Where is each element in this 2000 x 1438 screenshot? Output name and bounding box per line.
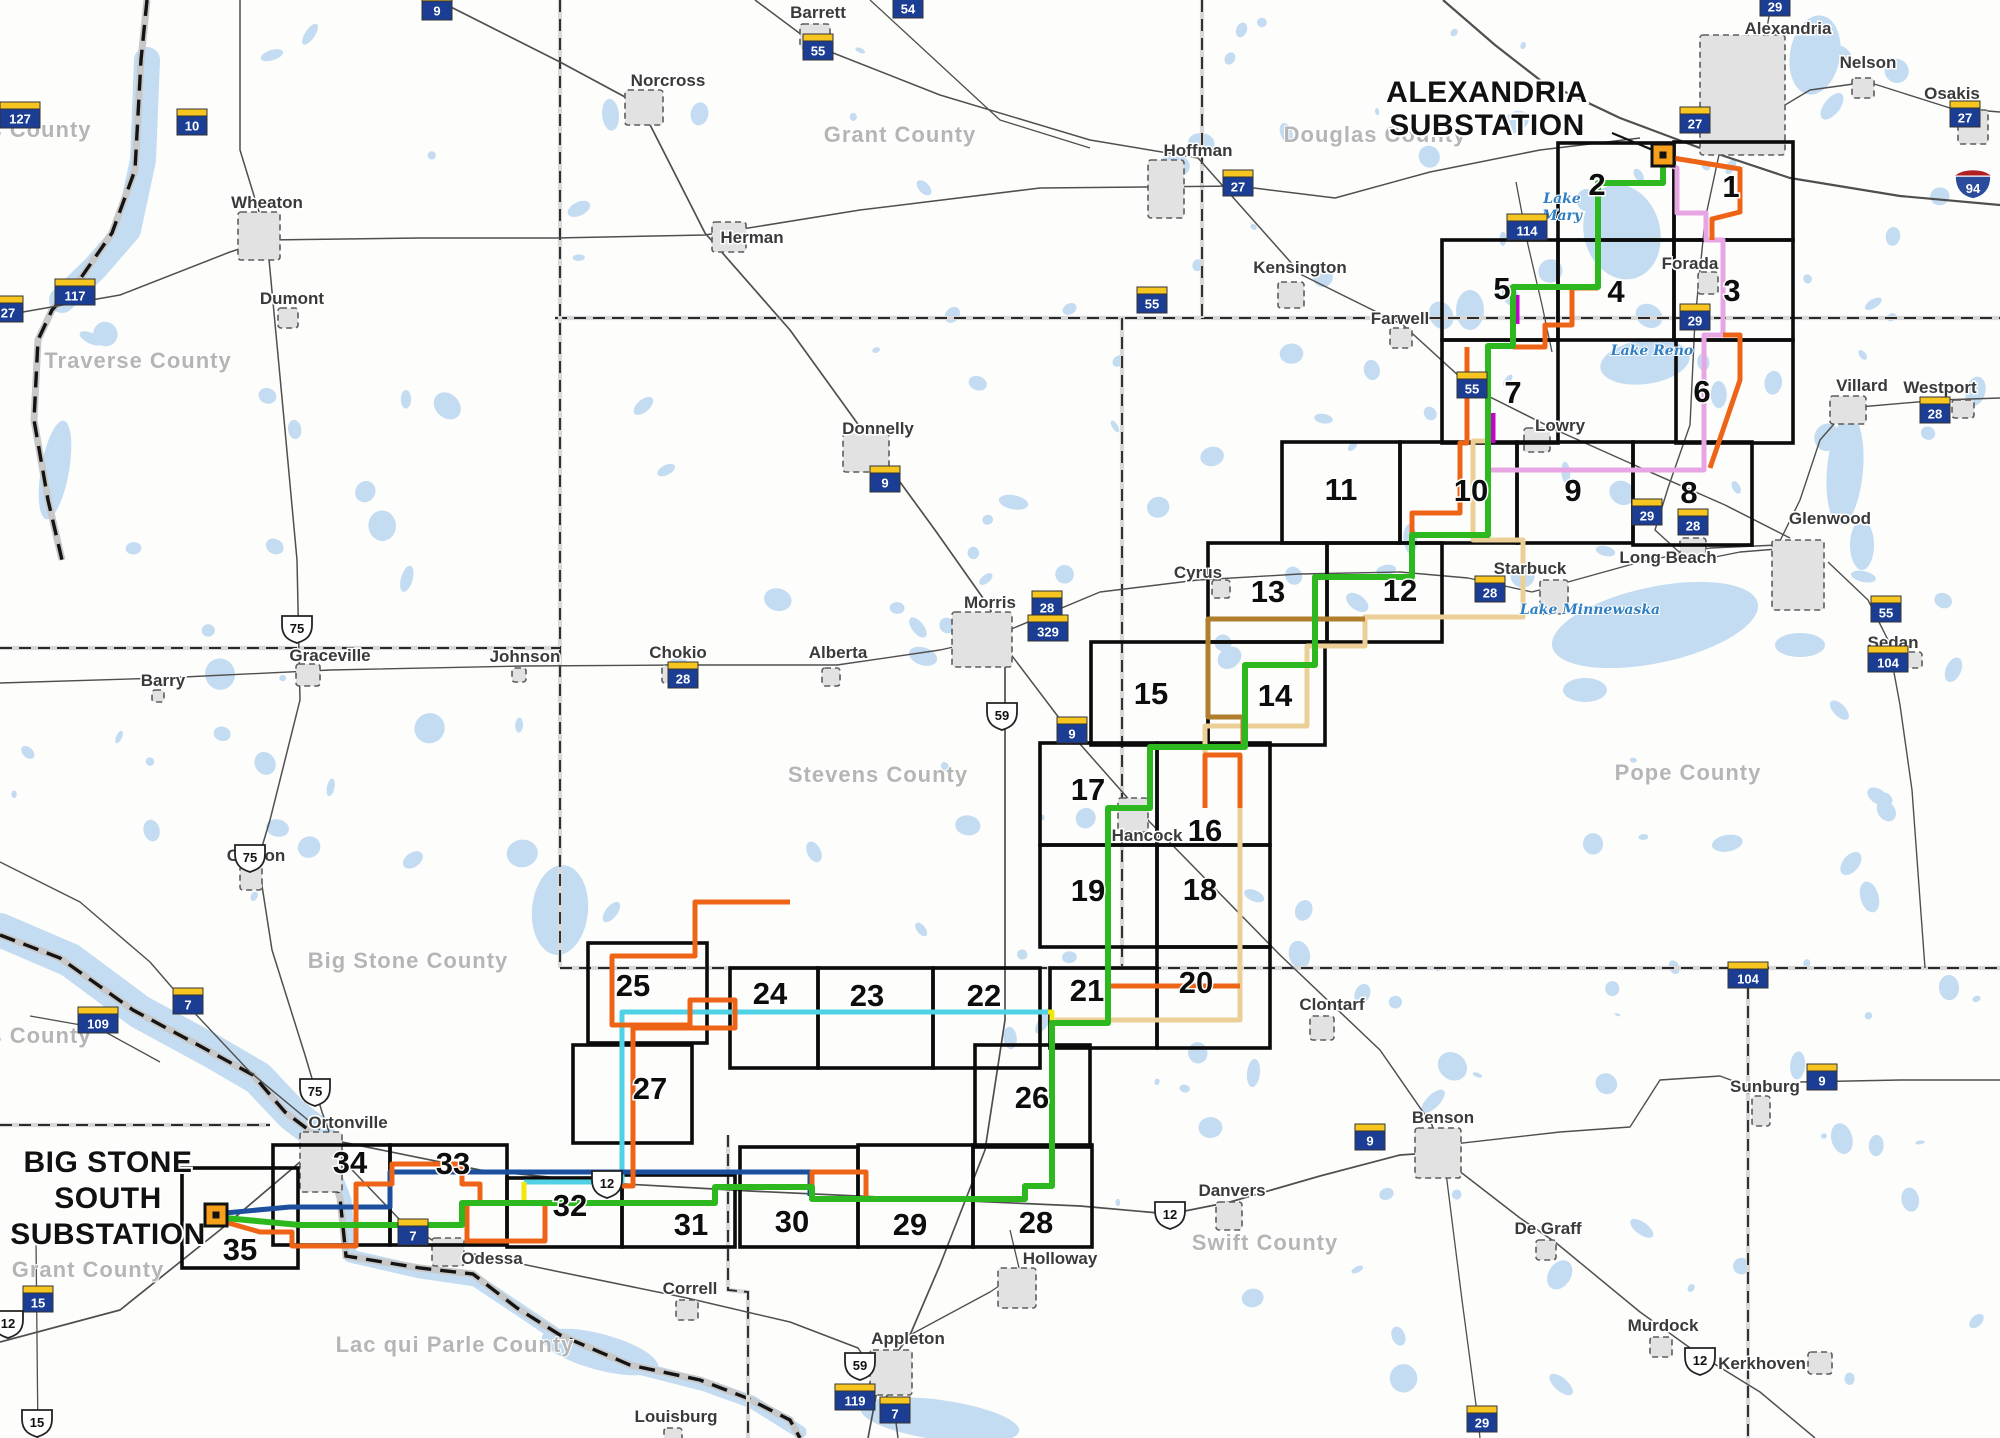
route-box-10-label: 10 (1454, 473, 1488, 508)
mn-shield-band-icon (23, 1286, 53, 1293)
town-label-cyrus: Cyrus (1174, 563, 1222, 582)
mn-shield-band-icon (1032, 591, 1062, 598)
town-label-osakis: Osakis (1924, 84, 1980, 103)
route-box-28-label: 28 (1019, 1205, 1053, 1240)
mn-shield-band-icon (173, 988, 203, 995)
shield-mn-55: 55 (1457, 372, 1487, 398)
shield-mn-28: 28 (1032, 591, 1062, 617)
substation-label-big-stone-south-line2: SUBSTATION (10, 1218, 206, 1251)
town-marker-forada (1698, 272, 1718, 294)
town-label-lowry: Lowry (1535, 416, 1586, 435)
route-box-17-label: 17 (1071, 772, 1105, 807)
town-marker-de-graff (1536, 1240, 1556, 1260)
shield-number: 75 (308, 1084, 322, 1099)
town-label-kensington: Kensington (1253, 258, 1347, 277)
shield-number: 29 (1640, 509, 1654, 524)
county-label-8-lac-qui-parle-county: Lac qui Parle County (336, 1332, 575, 1357)
town-marker-nelson (1852, 78, 1874, 98)
shield-number: 54 (901, 2, 916, 17)
shield-number: 7 (184, 998, 191, 1013)
route-box-7-label: 7 (1504, 375, 1521, 410)
route-box-9-label: 9 (1564, 473, 1581, 508)
shield-mn-7: 7 (398, 1219, 428, 1245)
shield-mn-55: 55 (1871, 596, 1901, 622)
mn-shield-band-icon (1678, 509, 1708, 516)
town-marker-louisburg (664, 1428, 682, 1438)
shield-mn-29: 29 (1760, 0, 1790, 16)
shield-number: 28 (1686, 519, 1700, 534)
route-box-20-label: 20 (1179, 965, 1213, 1000)
shield-mn-27: 27 (0, 296, 23, 322)
shield-mn-28: 28 (1678, 509, 1708, 535)
town-marker-villard (1830, 396, 1866, 424)
lake-box5-lake (1456, 290, 1484, 330)
route-box-13-label: 13 (1251, 574, 1285, 609)
shield-number: 119 (845, 1394, 866, 1409)
town-label-appleton: Appleton (871, 1329, 945, 1348)
town-marker-farwell (1390, 328, 1412, 348)
mn-shield-band-icon (1871, 596, 1901, 603)
route-box-1-label: 1 (1722, 169, 1739, 204)
shield-mn-119: 119 (835, 1384, 875, 1410)
shield-mn-27: 27 (1950, 101, 1980, 127)
shield-mn-29: 29 (1632, 499, 1662, 525)
route-box-5-label: 5 (1493, 271, 1510, 306)
town-label-kerkhoven: Kerkhoven (1718, 1354, 1806, 1373)
route-box-30-label: 30 (775, 1204, 809, 1239)
town-marker-benson (1415, 1128, 1461, 1178)
route-box-16-label: 16 (1188, 813, 1222, 848)
mn-shield-band-icon (1475, 576, 1505, 583)
shield-number: 12 (1163, 1207, 1177, 1222)
shield-number: 9 (1366, 1134, 1373, 1149)
mn-shield-band-icon (1950, 101, 1980, 108)
town-label-forada: Forada (1662, 254, 1719, 273)
mn-shield-band-icon (1632, 499, 1662, 506)
town-label-herman: Herman (720, 228, 783, 247)
shield-mn-109: 109 (78, 1007, 118, 1033)
mn-shield-band-icon (1680, 107, 1710, 114)
county-label-1-traverse-county: Traverse County (44, 348, 231, 373)
town-label-glenwood: Glenwood (1789, 509, 1871, 528)
route-box-6-label: 6 (1693, 374, 1710, 409)
shield-number: 329 (1037, 625, 1059, 640)
mn-shield-band-icon (870, 466, 900, 473)
shield-number: 7 (891, 1407, 898, 1422)
shield-number: 10 (185, 119, 199, 134)
county-label-4-stevens-county: Stevens County (788, 762, 968, 787)
substation-label-alexandria-line0: ALEXANDRIA (1386, 76, 1588, 109)
town-label-alberta: Alberta (809, 643, 868, 662)
town-marker-kerkhoven (1808, 1352, 1832, 1374)
shield-mn-15: 15 (23, 1286, 53, 1312)
town-marker-murdock (1650, 1337, 1672, 1357)
route-box-29-label: 29 (893, 1207, 927, 1242)
shield-mn-55: 55 (803, 34, 833, 60)
town-marker-barry (152, 690, 164, 702)
town-marker-cyrus (1212, 580, 1230, 598)
shield-mn-9: 9 (1355, 1124, 1385, 1150)
mn-shield-band-icon (1868, 646, 1908, 653)
mn-shield-band-icon (1728, 962, 1768, 969)
shield-mn-9: 9 (870, 466, 900, 492)
shield-number: 27 (1688, 117, 1702, 132)
substation-label-big-stone-south-line1: SOUTH (54, 1182, 162, 1215)
shield-mn-28: 28 (1920, 397, 1950, 423)
town-label-louisburg: Louisburg (634, 1407, 717, 1426)
shield-number: 9 (1818, 1074, 1825, 1089)
route-box-32-label: 32 (553, 1188, 587, 1223)
route-box-3-label: 3 (1723, 273, 1740, 308)
shield-mn-54: 54 (893, 0, 923, 18)
town-marker-johnson (512, 668, 526, 682)
town-label-ortonville: Ortonville (308, 1113, 387, 1132)
county-label-9-grant-county: Grant County (12, 1257, 165, 1282)
route-box-18-label: 18 (1183, 872, 1217, 907)
county-label-2-grant-county: Grant County (824, 122, 977, 147)
town-label-murdock: Murdock (1628, 1316, 1699, 1335)
town-marker-norcross (625, 90, 663, 125)
mn-shield-band-icon (177, 109, 207, 116)
shield-number: 55 (1145, 297, 1159, 312)
lake-blob (401, 390, 411, 409)
town-label-de-graff: De Graff (1514, 1219, 1581, 1238)
route-map-svg: Roberts CountyTraverse CountyGrant Count… (0, 0, 2000, 1438)
town-label-barry: Barry (141, 671, 186, 690)
town-label-starbuck: Starbuck (1494, 559, 1567, 578)
town-label-westport: Westport (1903, 378, 1977, 397)
town-label-holloway: Holloway (1023, 1249, 1098, 1268)
mn-shield-band-icon (1467, 1406, 1497, 1413)
route-box-34-label: 34 (333, 1145, 368, 1180)
town-marker-wheaton (238, 212, 280, 260)
shield-mn-9: 9 (1057, 717, 1087, 743)
shield-number: 75 (243, 850, 257, 865)
town-marker-clontarf (1310, 1016, 1334, 1040)
town-marker-kensington (1278, 282, 1304, 308)
mn-shield-band-icon (835, 1384, 875, 1391)
mn-shield-band-icon (1223, 170, 1253, 177)
town-label-morris: Morris (964, 593, 1016, 612)
town-marker-dumont (278, 308, 298, 328)
shield-mn-28: 28 (1475, 576, 1505, 602)
mn-shield-band-icon (1507, 214, 1547, 221)
town-label-danvers: Danvers (1198, 1181, 1265, 1200)
town-marker-sunburg (1752, 1096, 1770, 1126)
town-marker-danvers (1216, 1202, 1242, 1230)
shield-mn-104: 104 (1868, 646, 1908, 672)
town-marker-westport (1952, 400, 1974, 418)
substation-label-alexandria-line1: SUBSTATION (1389, 109, 1585, 142)
mn-shield-band-icon (1355, 1124, 1385, 1131)
mn-shield-band-icon (0, 296, 23, 303)
town-marker-odessa (432, 1238, 464, 1266)
shield-mn-9: 9 (1807, 1064, 1837, 1090)
route-box-2-label: 2 (1588, 167, 1605, 202)
mn-shield-band-icon (1057, 717, 1087, 724)
shield-mn-10: 10 (177, 109, 207, 135)
shield-mn-104: 104 (1728, 962, 1768, 988)
town-label-sunburg: Sunburg (1730, 1077, 1800, 1096)
shield-number: 59 (995, 708, 1009, 723)
mn-shield-band-icon (55, 279, 95, 286)
substation-marker-dot-big-stone-south (213, 1212, 220, 1219)
shield-number: 28 (1040, 601, 1054, 616)
town-label-wheaton: Wheaton (231, 193, 303, 212)
town-label-donnelly: Donnelly (842, 419, 914, 438)
mn-shield-band-icon (1457, 372, 1487, 379)
town-label-hoffman: Hoffman (1164, 141, 1233, 160)
shield-mn-7: 7 (880, 1397, 910, 1423)
town-label-johnson: Johnson (490, 647, 561, 666)
shield-number: 114 (1517, 224, 1539, 239)
route-box-15-label: 15 (1134, 676, 1168, 711)
lake-emily-lake (1563, 678, 1607, 702)
town-label-nelson: Nelson (1840, 53, 1897, 72)
shield-mn-127: 127 (0, 102, 40, 128)
mn-shield-band-icon (1807, 1064, 1837, 1071)
route-box-27-label: 27 (633, 1071, 667, 1106)
shield-mn-27: 27 (1680, 107, 1710, 133)
town-label-graceville: Graceville (289, 646, 370, 665)
route-box-25-label: 25 (616, 968, 650, 1003)
town-marker-alberta (822, 668, 840, 686)
town-label-barrett: Barrett (790, 3, 846, 22)
lake-label-lake-minnewaska: Lake Minnewaska (1519, 602, 1660, 618)
shield-mn-29: 29 (1680, 304, 1710, 330)
town-label-correll: Correll (663, 1279, 718, 1298)
town-marker-hoffman (1148, 160, 1184, 218)
town-label-long-beach: Long Beach (1619, 548, 1716, 567)
shield-number: 12 (1693, 1353, 1707, 1368)
shield-number: 55 (1879, 606, 1893, 621)
shield-number: 9 (881, 476, 888, 491)
shield-number: 12 (1, 1316, 15, 1331)
mn-shield-band-icon (668, 662, 698, 669)
route-box-26-label: 26 (1015, 1080, 1049, 1115)
town-marker-graceville (296, 664, 320, 686)
mn-shield-band-icon (1137, 287, 1167, 294)
shield-number: 7 (409, 1229, 416, 1244)
mn-shield-band-icon (1920, 397, 1950, 404)
route-box-14-label: 14 (1258, 678, 1293, 713)
shield-number: 28 (1928, 407, 1942, 422)
shield-mn-55: 55 (1137, 287, 1167, 313)
map-canvas: Roberts CountyTraverse CountyGrant Count… (0, 0, 2000, 1438)
county-label-7-swift-county: Swift County (1192, 1230, 1338, 1255)
mn-shield-band-icon (1680, 304, 1710, 311)
shield-mn-29: 29 (1467, 1406, 1497, 1432)
shield-number: 27 (1958, 111, 1972, 126)
mn-shield-band-icon (1028, 615, 1068, 622)
shield-number: 127 (9, 112, 31, 127)
lake-glenwood-s-lake (1775, 633, 1825, 657)
shield-number: 9 (433, 4, 440, 19)
shield-number: 27 (1231, 180, 1245, 195)
substation-label-big-stone-south-line0: BIG STONE (24, 1146, 193, 1179)
town-label-hancock: Hancock (1112, 826, 1183, 845)
mn-shield-band-icon (78, 1007, 118, 1014)
mn-shield-band-icon (0, 102, 40, 109)
shield-number: 28 (1483, 586, 1497, 601)
town-marker-glenwood (1772, 540, 1824, 610)
shield-number: 15 (30, 1415, 44, 1430)
town-marker-correll (676, 1300, 698, 1320)
shield-number: 117 (65, 289, 86, 304)
shield-mn-329: 329 (1028, 615, 1068, 641)
shield-number: 29 (1475, 1416, 1489, 1431)
shield-number: 104 (1737, 972, 1759, 987)
shield-mn-7: 7 (173, 988, 203, 1014)
route-box-12-label: 12 (1383, 573, 1417, 608)
shield-number: 59 (853, 1358, 867, 1373)
route-box-22-label: 22 (967, 978, 1001, 1013)
shield-number: 29 (1688, 314, 1702, 329)
shield-mn-117: 117 (55, 279, 95, 305)
lake-label-lake: Lake (1542, 191, 1581, 207)
shield-number: 15 (31, 1296, 45, 1311)
town-label-norcross: Norcross (631, 71, 706, 90)
shield-number: 104 (1877, 656, 1899, 671)
shield-number: 94 (1966, 181, 1981, 196)
shield-number: 9 (1068, 727, 1075, 742)
mn-shield-band-icon (398, 1219, 428, 1226)
shield-number: 12 (600, 1176, 614, 1191)
town-marker-appleton (870, 1350, 912, 1395)
route-box-8-label: 8 (1680, 475, 1697, 510)
route-box-24-label: 24 (753, 976, 788, 1011)
route-box-11-label: 11 (1325, 472, 1358, 507)
county-label-6-big-stone-county: Big Stone County (308, 948, 509, 973)
shield-mn-28: 28 (668, 662, 698, 688)
route-box-4-label: 4 (1607, 274, 1625, 309)
shield-number: 55 (1465, 382, 1479, 397)
route-box-35-label: 35 (223, 1232, 257, 1267)
shield-number: 27 (1, 306, 15, 321)
town-label-clontarf: Clontarf (1299, 995, 1365, 1014)
lake-label-lake-reno: Lake Reno (1610, 343, 1693, 359)
route-box-19-label: 19 (1071, 873, 1105, 908)
town-label-farwell: Farwell (1371, 309, 1430, 328)
mn-shield-band-icon (803, 34, 833, 41)
town-label-chokio: Chokio (649, 643, 707, 662)
town-label-villard: Villard (1836, 376, 1888, 395)
route-box-21-label: 21 (1070, 973, 1104, 1008)
route-box-23-label: 23 (850, 978, 884, 1013)
shield-mn-114: 114 (1507, 214, 1547, 240)
county-label-5-pope-county: Pope County (1615, 760, 1762, 785)
substation-marker-dot-alexandria (1660, 152, 1667, 159)
shield-mn-9: 9 (422, 0, 452, 20)
shield-mn-27: 27 (1223, 170, 1253, 196)
town-label-benson: Benson (1412, 1108, 1474, 1127)
route-box-31-label: 31 (674, 1207, 708, 1242)
town-label-dumont: Dumont (260, 289, 325, 308)
town-label-alexandria: Alexandria (1745, 19, 1832, 38)
shield-number: 75 (290, 621, 304, 636)
shield-number: 29 (1768, 0, 1782, 15)
shield-number: 109 (87, 1017, 109, 1032)
mn-shield-band-icon (880, 1397, 910, 1404)
town-label-odessa: Odessa (461, 1249, 523, 1268)
shield-number: 28 (676, 672, 690, 687)
town-marker-alexandria (1700, 35, 1785, 155)
town-marker-holloway (998, 1268, 1036, 1308)
route-box-33-label: 33 (436, 1146, 470, 1181)
town-marker-morris (952, 612, 1012, 667)
shield-number: 55 (811, 44, 825, 59)
